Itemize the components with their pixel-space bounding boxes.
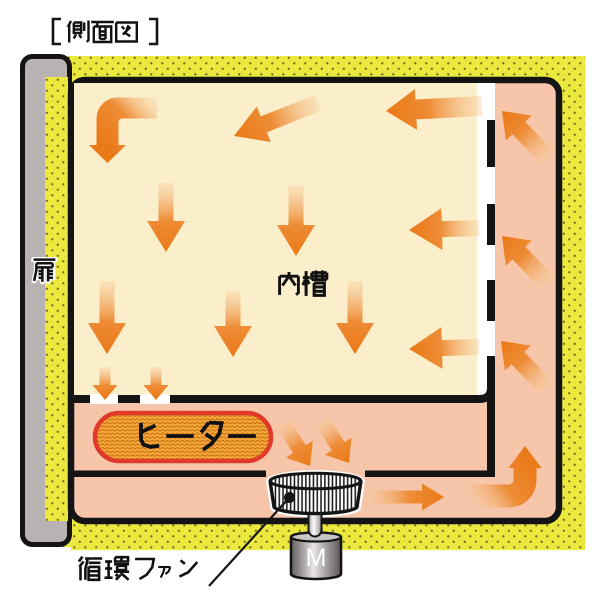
svg-text:M: M bbox=[306, 544, 327, 572]
